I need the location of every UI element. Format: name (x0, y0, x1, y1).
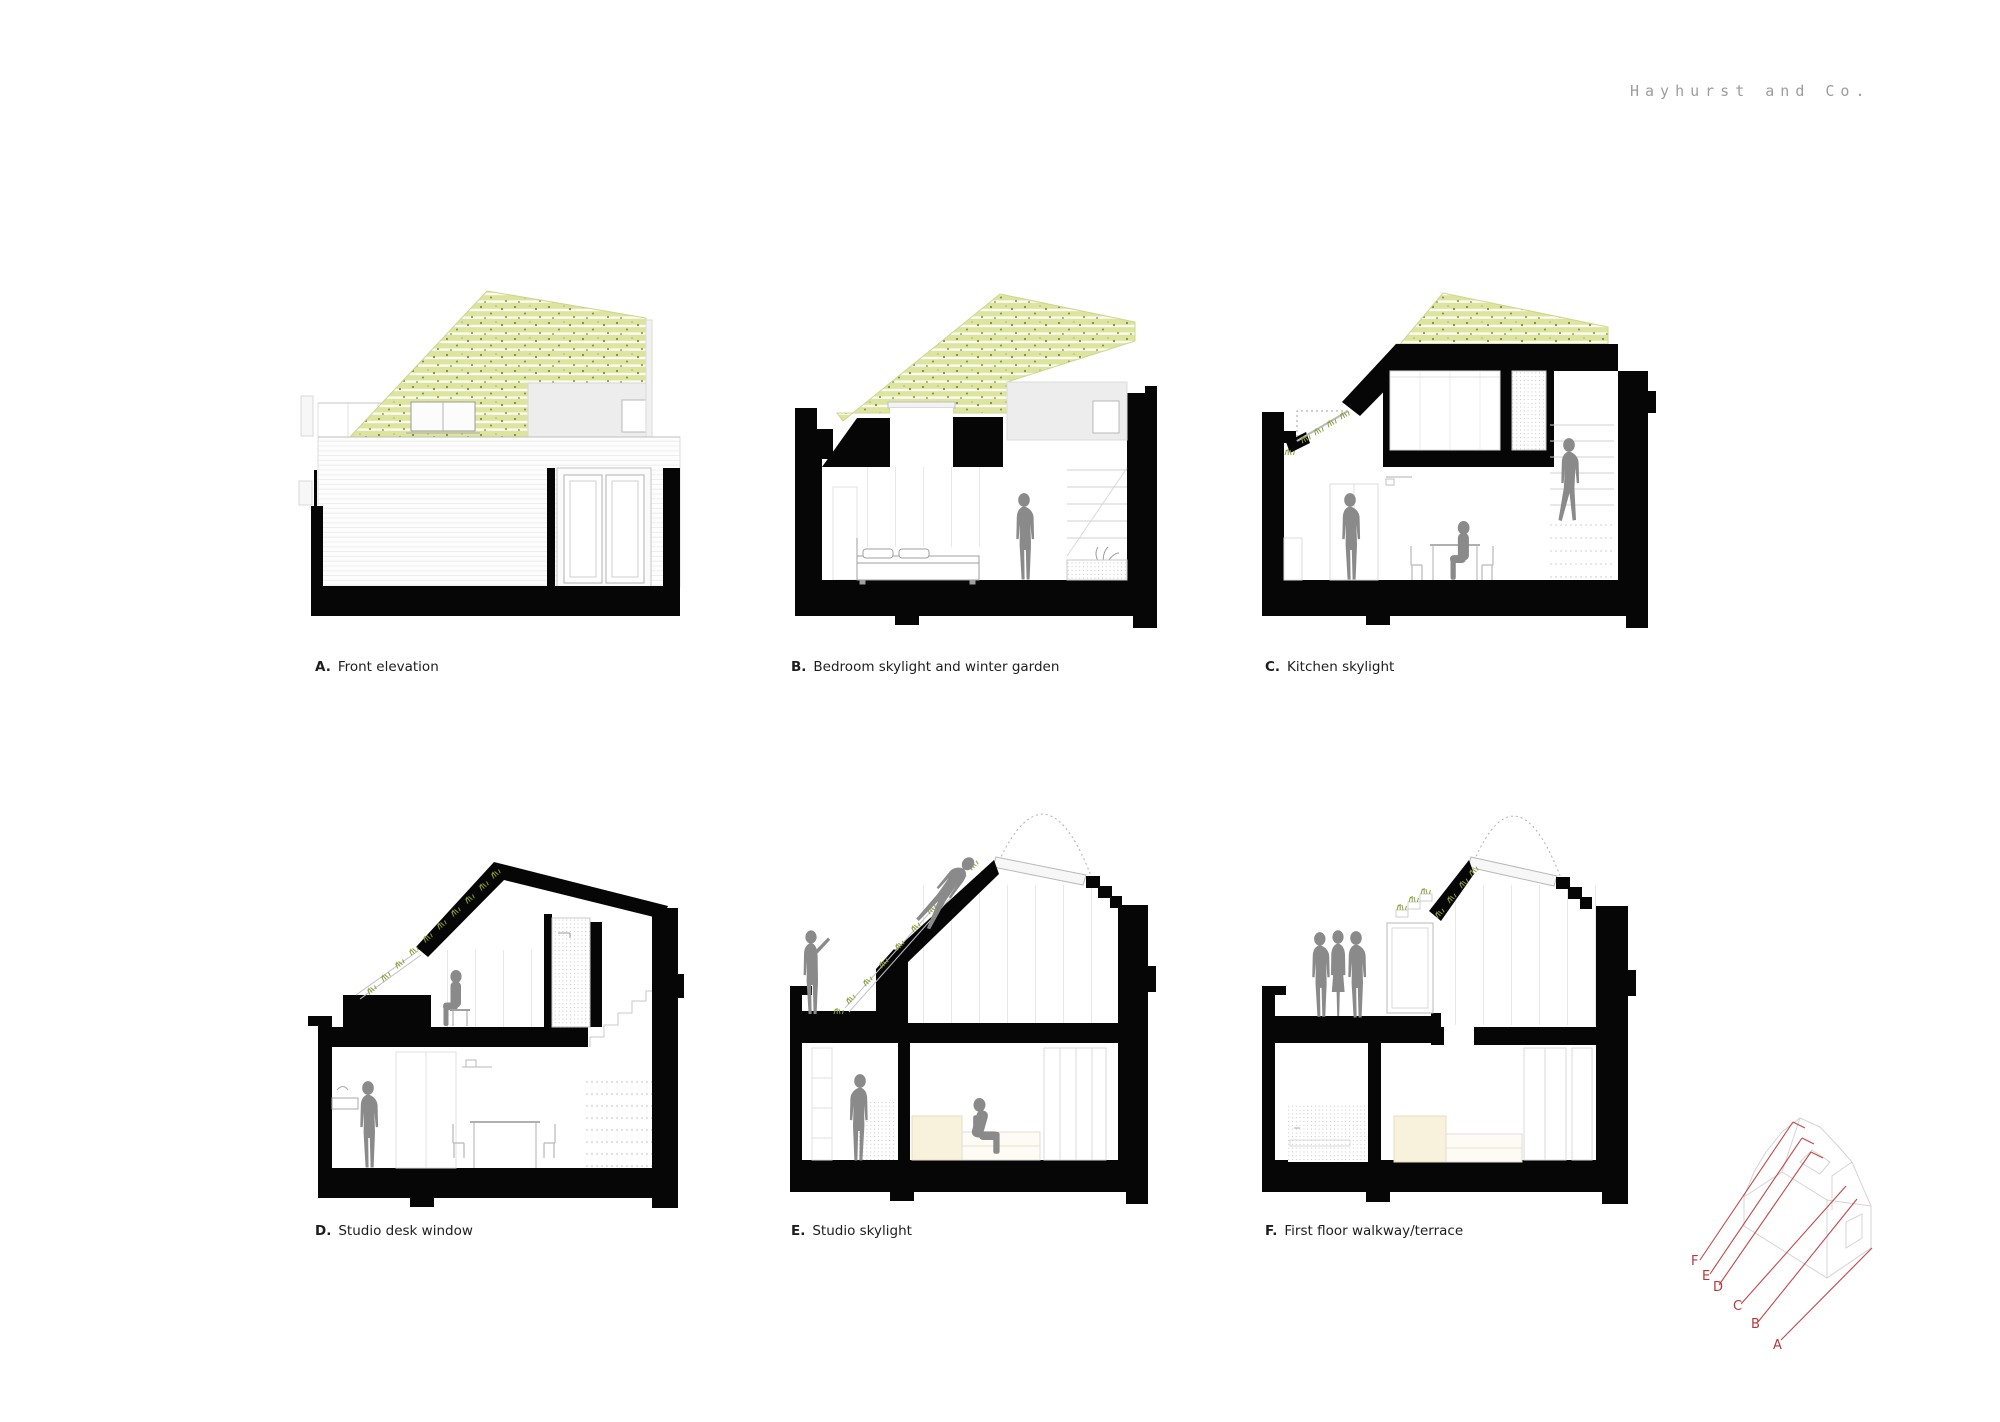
key-house-outline (1744, 1118, 1871, 1278)
caption-letter: A. (315, 659, 331, 675)
caption-letter: C. (1265, 659, 1280, 675)
skylight-shaft (890, 408, 953, 467)
first-floor-slab (332, 1027, 588, 1047)
shower-panel (552, 918, 590, 1027)
caption-section-d: D.Studio desk window (315, 1223, 473, 1239)
stair-lower (586, 1082, 652, 1166)
ground-slab (1262, 1160, 1628, 1192)
key-label-d: D (1713, 1280, 1723, 1295)
opening-skylight (993, 857, 1086, 885)
terrace-slab (1275, 1016, 1437, 1043)
chair (1482, 546, 1493, 580)
dining-table (470, 1122, 540, 1168)
sofa (1394, 1116, 1522, 1162)
caption-letter: B. (791, 659, 806, 675)
desk-parapet (343, 995, 431, 1027)
dormer-window (406, 402, 480, 433)
caption-letter: F. (1265, 1223, 1277, 1239)
caption-letter: D. (315, 1223, 331, 1239)
stair (1550, 425, 1614, 577)
caption-section-b: B.Bedroom skylight and winter garden (791, 659, 1059, 675)
key-label-f: F (1691, 1254, 1698, 1269)
downpipe (646, 320, 652, 437)
door-frame (396, 1052, 456, 1168)
wall-shelf (1386, 477, 1412, 485)
entrance-doors (554, 468, 651, 588)
section-c-drawing (1262, 293, 1656, 628)
caption-text: First floor walkway/terrace (1284, 1223, 1463, 1239)
drawing-sheet: Hayhurst and Co. A.Front elevation B.Bed… (0, 0, 2000, 1422)
roof-planters (1396, 888, 1432, 917)
wardrobe-panels (862, 467, 1003, 547)
figure-seated (1450, 521, 1470, 580)
figure-group (1312, 930, 1366, 1017)
stair-void (1444, 1027, 1474, 1045)
caption-text: Studio desk window (338, 1223, 473, 1239)
neighbour-wall-mark (299, 481, 312, 505)
figure-standing (1342, 493, 1360, 579)
sink (332, 1087, 358, 1110)
first-floor-slab (800, 1023, 1118, 1043)
figure-descending-stair (1559, 438, 1580, 521)
caption-section-f: F.First floor walkway/terrace (1265, 1223, 1463, 1239)
opening-skylight (1468, 857, 1557, 886)
key-label-c: C (1733, 1299, 1742, 1314)
studio-window (1387, 923, 1433, 1013)
ground-slab (790, 1160, 1148, 1192)
figure-standing (1016, 493, 1034, 579)
ground-slab (318, 1168, 678, 1198)
neighbour-wall-mark (301, 396, 313, 436)
caption-text: Studio skylight (812, 1223, 912, 1239)
ground-slab (1262, 580, 1648, 616)
ground-slab (311, 586, 680, 616)
caption-section-c: C.Kitchen skylight (1265, 659, 1394, 675)
shower-panel (1512, 371, 1546, 450)
base-cabinet (1284, 538, 1302, 580)
upper-gray-panel (528, 383, 646, 437)
stair (1067, 468, 1127, 580)
section-d-drawing (308, 862, 684, 1208)
caption-letter: E. (791, 1223, 805, 1239)
glazed-door (1524, 1048, 1592, 1160)
caption-section-e: E.Studio skylight (791, 1223, 912, 1239)
drawings-canvas (0, 0, 2000, 1422)
key-label-e: E (1702, 1269, 1710, 1284)
glazed-door (1044, 1048, 1106, 1160)
section-f-drawing (1262, 816, 1636, 1204)
wall-shelf (462, 1060, 492, 1067)
clerestory-window (1390, 371, 1500, 450)
upper-gray-panel (1007, 382, 1127, 440)
ground-slab (795, 580, 1157, 616)
chair (1411, 546, 1422, 580)
figure-standing (360, 1081, 378, 1167)
key-diagram (1700, 1118, 1872, 1340)
caption-text: Front elevation (338, 659, 439, 675)
bathroom (1288, 1104, 1368, 1162)
caption-text: Kitchen skylight (1287, 659, 1394, 675)
kitchen-cabinets (812, 1048, 832, 1160)
brand-logo: Hayhurst and Co. (1630, 82, 1871, 100)
section-b-drawing (795, 294, 1157, 628)
roof-right-slope (494, 862, 668, 919)
figure-pointing (804, 930, 831, 1014)
cut-walls (308, 862, 684, 1208)
studio-wall-panels (1438, 885, 1603, 1025)
key-label-b: B (1751, 1317, 1760, 1332)
closet-strip (833, 487, 857, 580)
section-e-drawing (790, 814, 1156, 1204)
section-a-drawing (299, 291, 680, 616)
key-label-a: A (1773, 1338, 1782, 1353)
desk-window-glass (356, 951, 421, 999)
skylight-glass (1297, 411, 1348, 441)
chair (453, 1124, 464, 1158)
caption-text: Bedroom skylight and winter garden (813, 659, 1059, 675)
caption-section-a: A.Front elevation (315, 659, 439, 675)
chair (544, 1124, 555, 1158)
window-cill-band (1383, 450, 1554, 467)
skylight-glazing (888, 402, 955, 408)
